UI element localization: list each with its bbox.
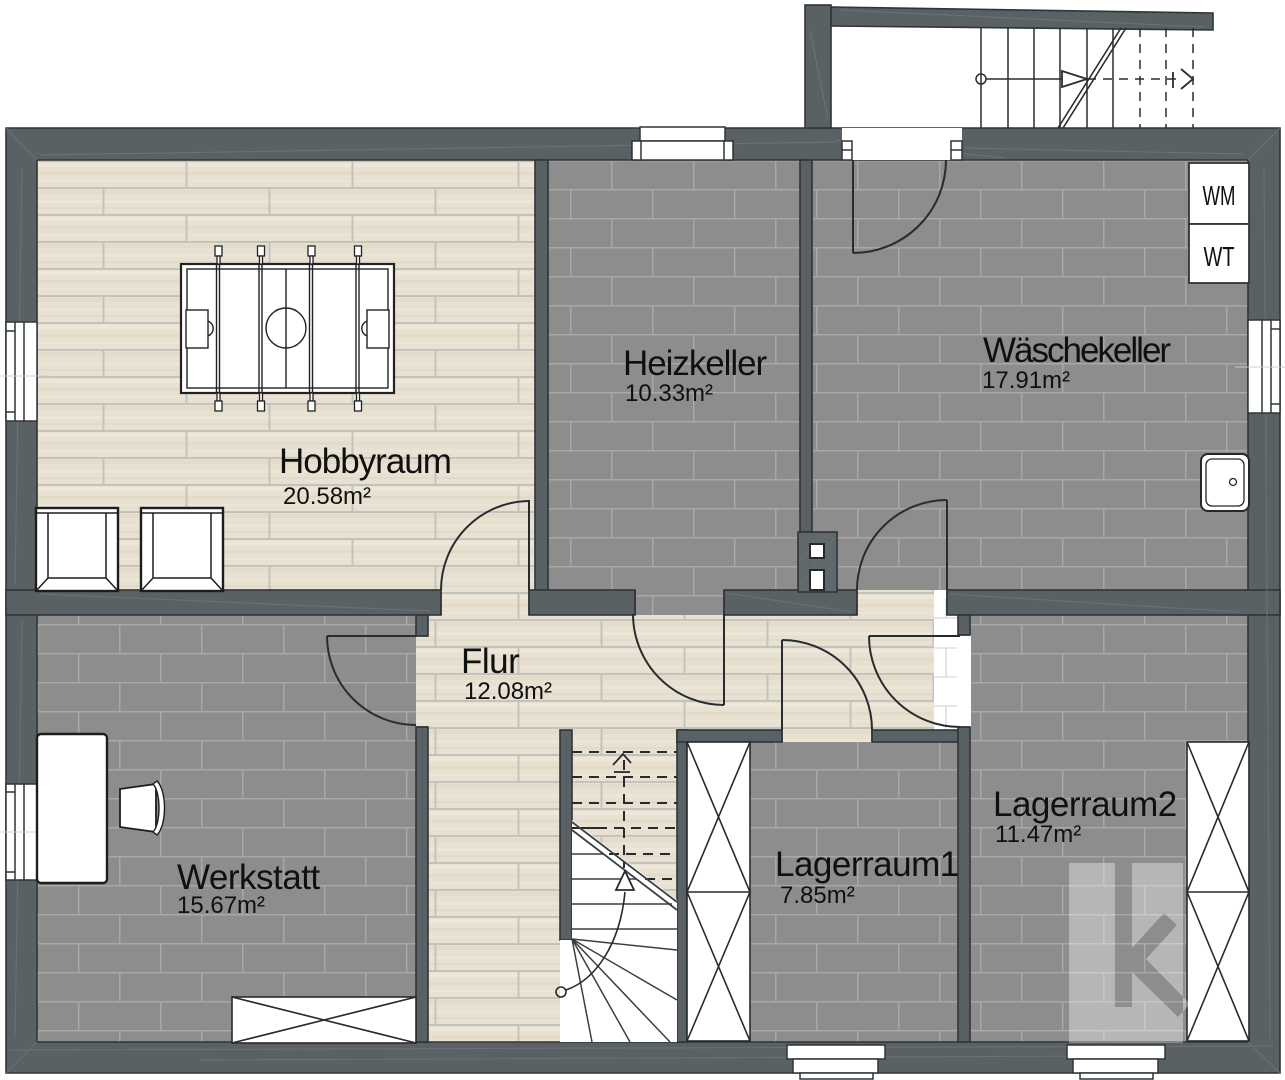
svg-text:Flur: Flur: [461, 642, 520, 681]
svg-text:7.85m²: 7.85m²: [780, 882, 855, 909]
svg-text:17.91m²: 17.91m²: [982, 367, 1070, 394]
svg-text:12.08m²: 12.08m²: [464, 678, 552, 705]
svg-text:Lagerraum1: Lagerraum1: [775, 845, 959, 884]
svg-text:Lagerraum2: Lagerraum2: [993, 785, 1177, 824]
svg-text:Wäschekeller: Wäschekeller: [983, 331, 1171, 370]
svg-text:WT: WT: [1204, 241, 1235, 272]
svg-text:10.33m²: 10.33m²: [625, 380, 713, 407]
svg-text:11.47m²: 11.47m²: [995, 821, 1081, 848]
svg-text:Hobbyraum: Hobbyraum: [279, 442, 451, 481]
svg-text:20.58m²: 20.58m²: [283, 483, 371, 510]
svg-text:WM: WM: [1203, 180, 1236, 211]
svg-text:Heizkeller: Heizkeller: [623, 344, 768, 383]
svg-text:15.67m²: 15.67m²: [177, 892, 265, 919]
